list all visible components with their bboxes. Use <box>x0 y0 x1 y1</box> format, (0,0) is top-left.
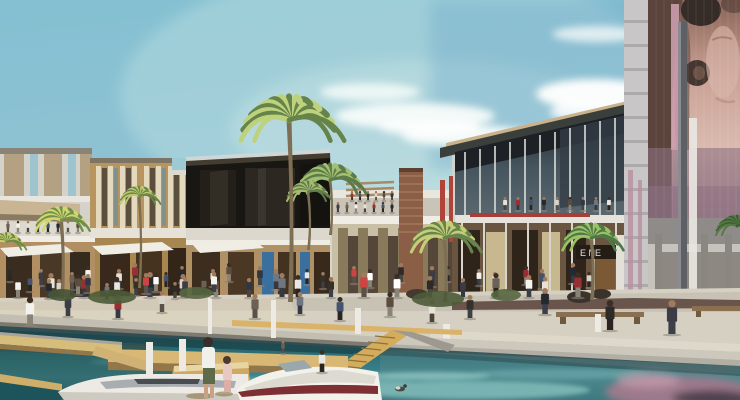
svg-text:E NE: E NE <box>580 248 601 258</box>
